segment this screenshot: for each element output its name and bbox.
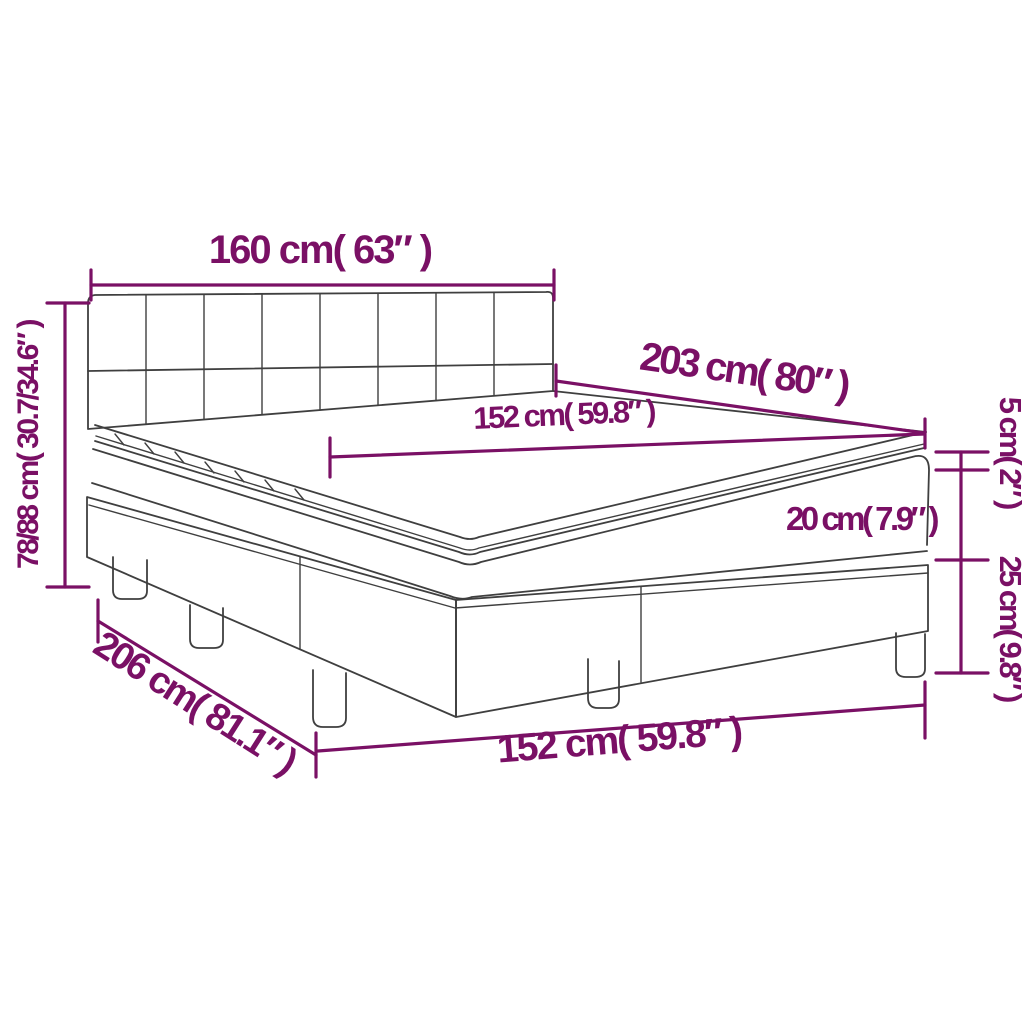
label-bed-height: 78/88 cm( 30.7/34.6″ ) [12, 320, 45, 569]
base-foot-face [456, 565, 928, 717]
label-base-height: 25 cm( 9.8″ ) [993, 556, 1024, 702]
bed-leg [896, 633, 925, 677]
bed-leg [588, 659, 619, 708]
label-mattress-thickness: 20 cm( 7.9″ ) [786, 500, 939, 537]
dim-bed-height [47, 303, 89, 587]
label-topper-thickness: 5 cm( 2″ ) [993, 397, 1024, 509]
dim-mattress-width-top [330, 434, 924, 477]
bed-leg [113, 557, 147, 599]
bed-leg [313, 670, 346, 727]
dim-headboard-width [91, 270, 554, 300]
bed-diagram-svg: 160 cm( 63″ ) 78/88 cm( 30.7/34.6″ ) 203… [0, 0, 1024, 1024]
label-mattress-width-top: 152 cm( 59.8″ ) [473, 393, 656, 436]
dim-thickness-stack [936, 452, 988, 673]
topper-stitching [115, 434, 304, 500]
dimension-diagram: 160 cm( 63″ ) 78/88 cm( 30.7/34.6″ ) 203… [0, 0, 1024, 1024]
label-base-width: 152 cm( 59.8″ ) [495, 709, 743, 771]
topper-bottom-edge [95, 441, 924, 555]
label-headboard-width: 160 cm( 63″ ) [209, 228, 432, 272]
bed-leg [190, 605, 223, 648]
